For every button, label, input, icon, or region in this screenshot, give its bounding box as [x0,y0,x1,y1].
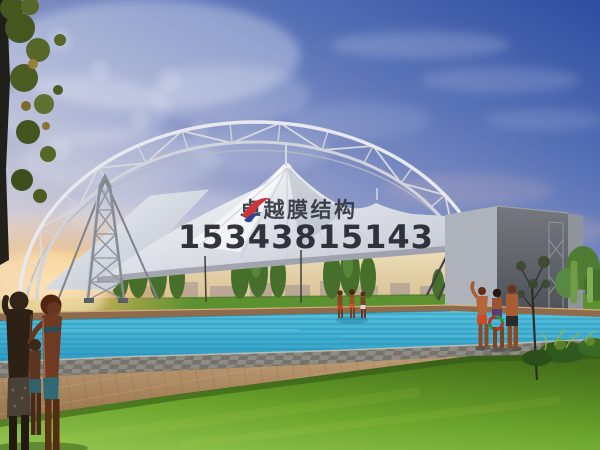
screenshot-root: 卓越膜结构 15343815143 [0,0,600,450]
cropped-watermark-remnant [330,0,598,6]
scene-image [0,0,600,450]
poolside-people-middle [336,289,368,324]
